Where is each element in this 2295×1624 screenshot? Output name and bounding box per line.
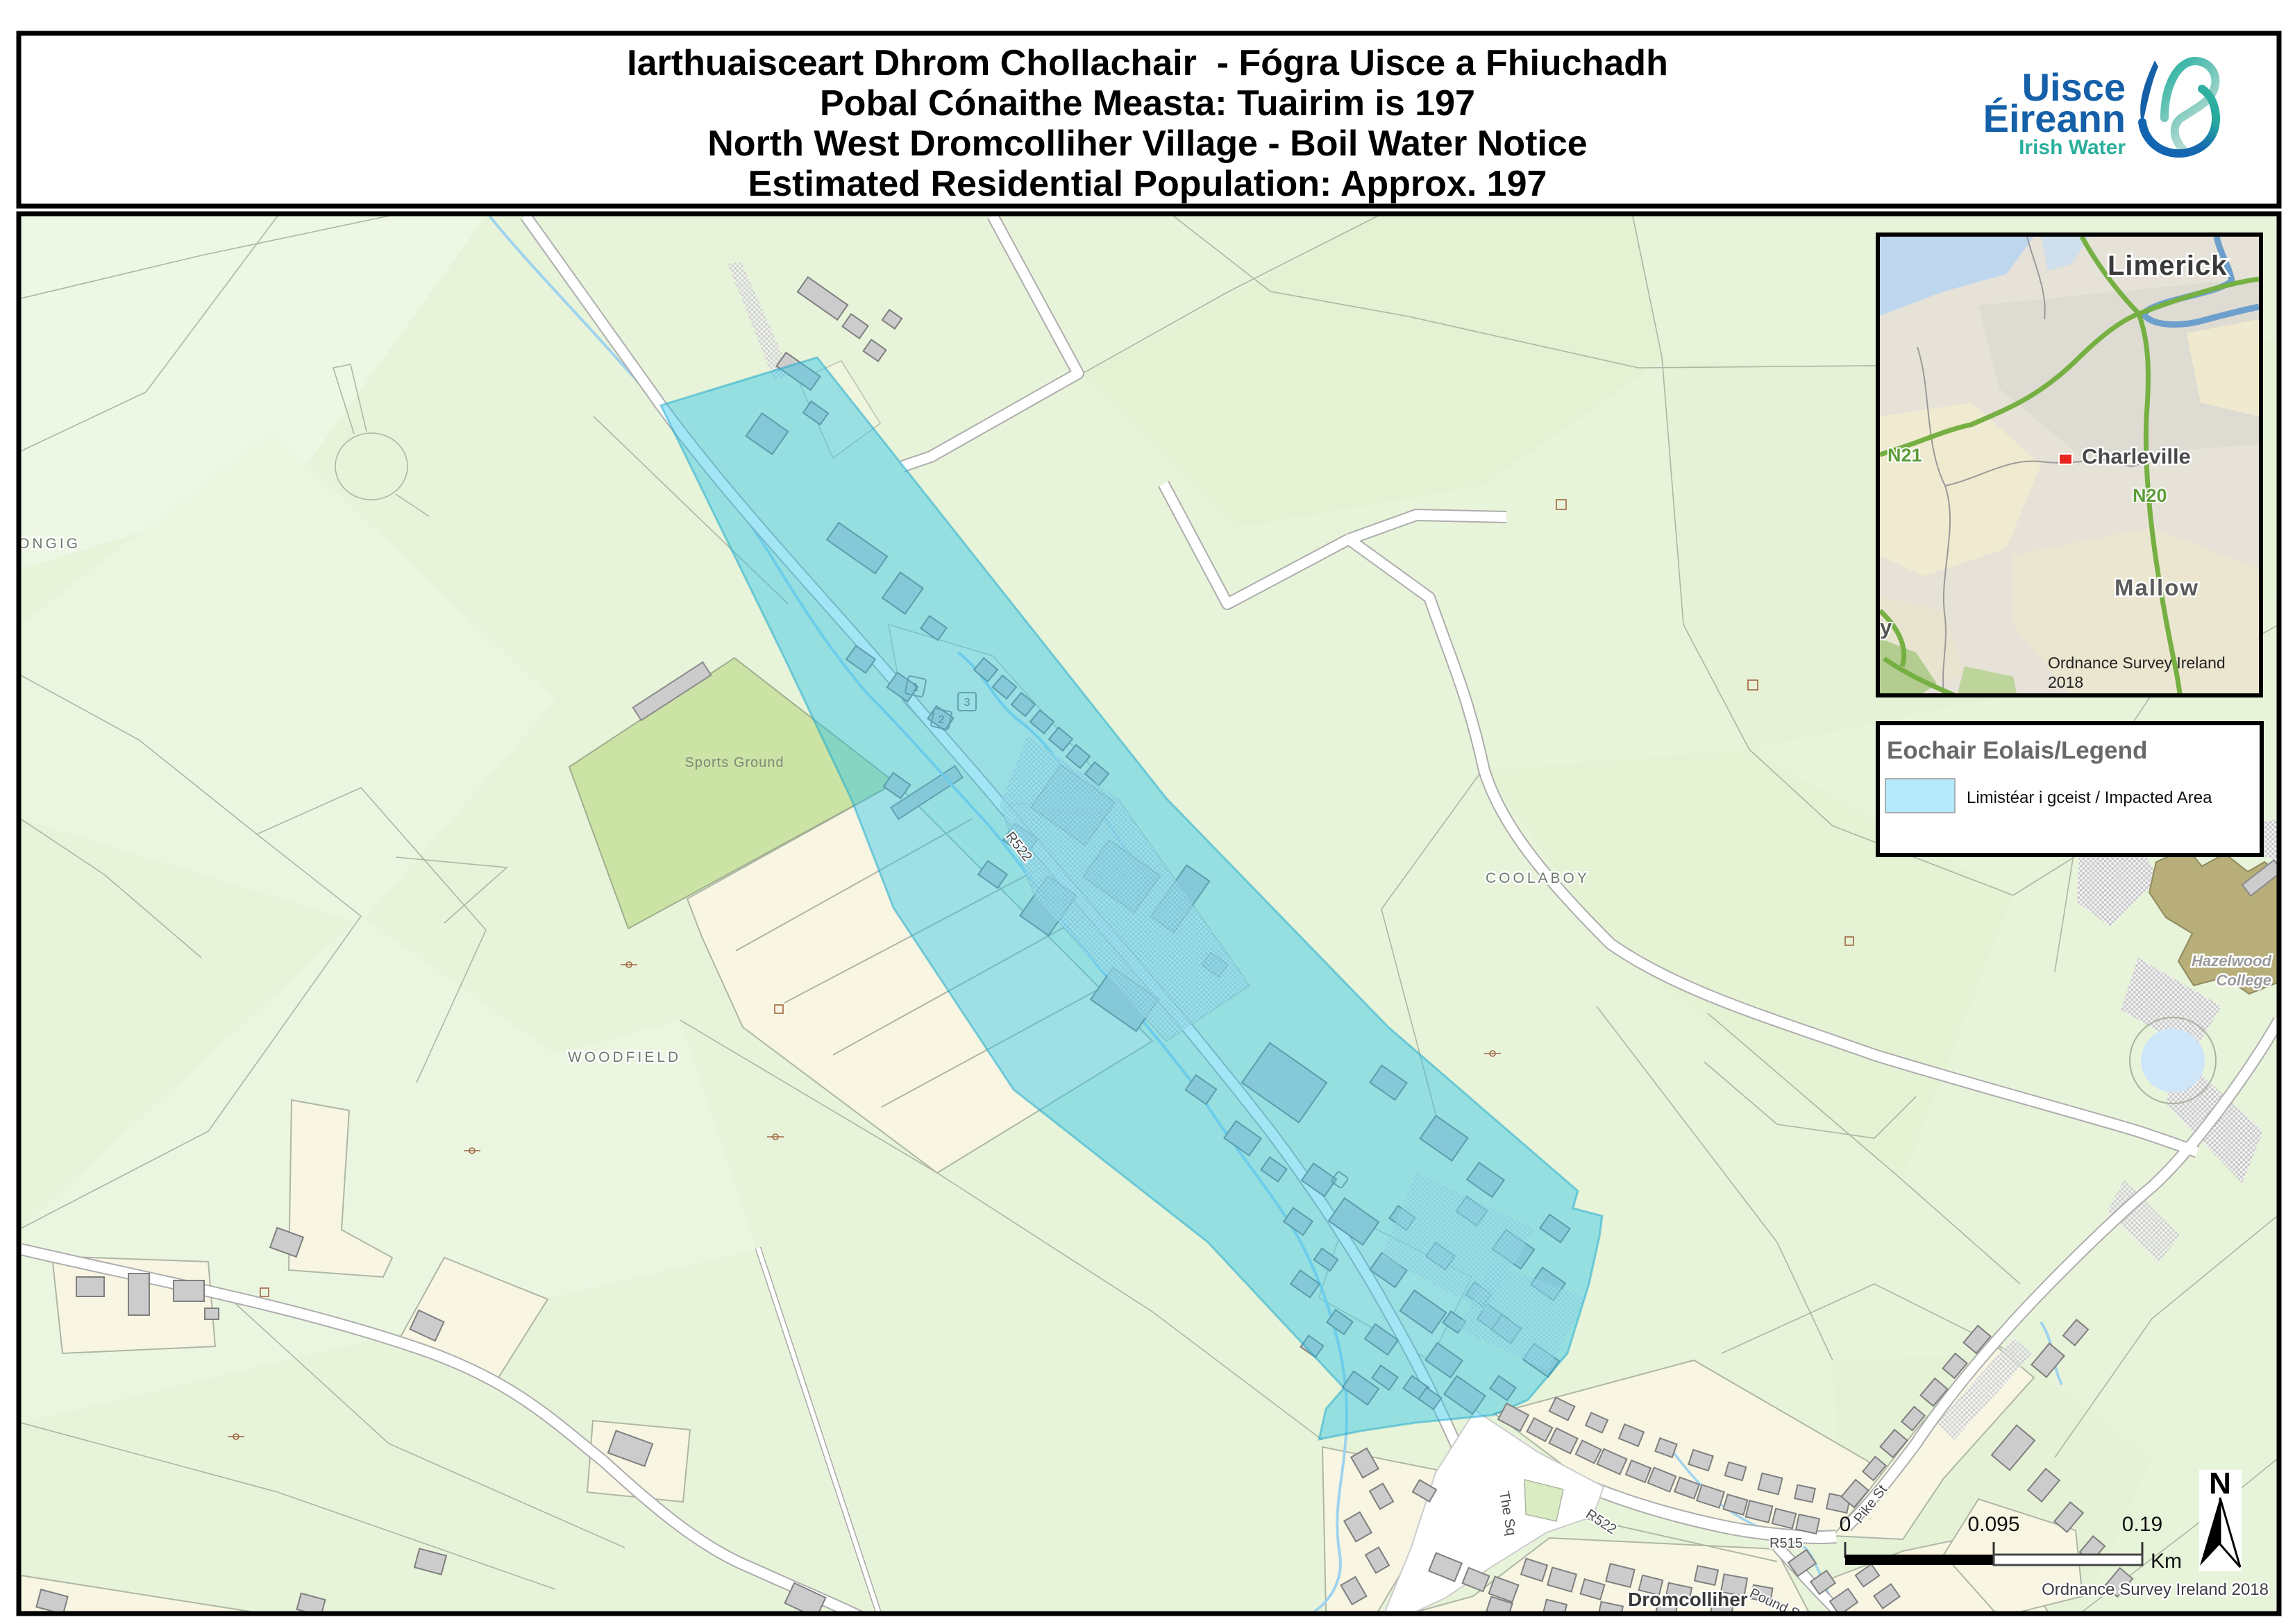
svg-text:Ordnance Survey Ireland 2018: Ordnance Survey Ireland 2018 [2042, 1580, 2269, 1599]
svg-text:Hazelwood: Hazelwood [2192, 952, 2271, 970]
svg-text:Limistéar i gceist / Impacted: Limistéar i gceist / Impacted Area [1967, 788, 2212, 807]
svg-text:N20: N20 [2133, 485, 2167, 506]
svg-text:R515: R515 [1769, 1536, 1803, 1551]
svg-text:0.19: 0.19 [2122, 1513, 2162, 1536]
svg-text:COOLABOY: COOLABOY [1486, 870, 1590, 886]
svg-text:ONGIG: ONGIG [18, 536, 81, 552]
svg-text:North West Dromcolliher Villag: North West Dromcolliher Village - Boil W… [707, 124, 1587, 164]
svg-text:Ordnance Survey Ireland: Ordnance Survey Ireland [2048, 654, 2226, 672]
svg-text:2018: 2018 [2048, 673, 2083, 691]
svg-text:Éireann: Éireann [1983, 96, 2126, 140]
svg-text:Dromcolliher: Dromcolliher [1628, 1589, 1748, 1610]
svg-text:N21: N21 [1888, 445, 1922, 466]
svg-text:Eochair Eolais/Legend: Eochair Eolais/Legend [1887, 737, 2147, 764]
svg-text:Km: Km [2151, 1550, 2182, 1573]
svg-text:Charleville: Charleville [2082, 444, 2191, 468]
svg-text:0.095: 0.095 [1967, 1513, 2019, 1536]
svg-text:WOODFIELD: WOODFIELD [568, 1049, 681, 1065]
svg-text:College: College [2217, 972, 2271, 989]
svg-text:N: N [2209, 1466, 2231, 1500]
svg-text:Limerick: Limerick [2108, 251, 2228, 281]
svg-text:0: 0 [1840, 1513, 1851, 1536]
svg-text:Mallow: Mallow [2115, 575, 2199, 600]
svg-text:y: y [1880, 615, 1892, 639]
svg-text:Estimated Residential Populati: Estimated Residential Population: Approx… [748, 164, 1547, 204]
svg-text:Sports Ground: Sports Ground [684, 755, 784, 770]
svg-text:Pobal Cónaithe Measta: Tuairim: Pobal Cónaithe Measta: Tuairim is 197 [820, 83, 1475, 124]
svg-text:Iarthuaisceart Dhrom Chollacha: Iarthuaisceart Dhrom Chollachair - Fógra… [627, 43, 1668, 83]
svg-text:Irish Water: Irish Water [2019, 136, 2126, 159]
